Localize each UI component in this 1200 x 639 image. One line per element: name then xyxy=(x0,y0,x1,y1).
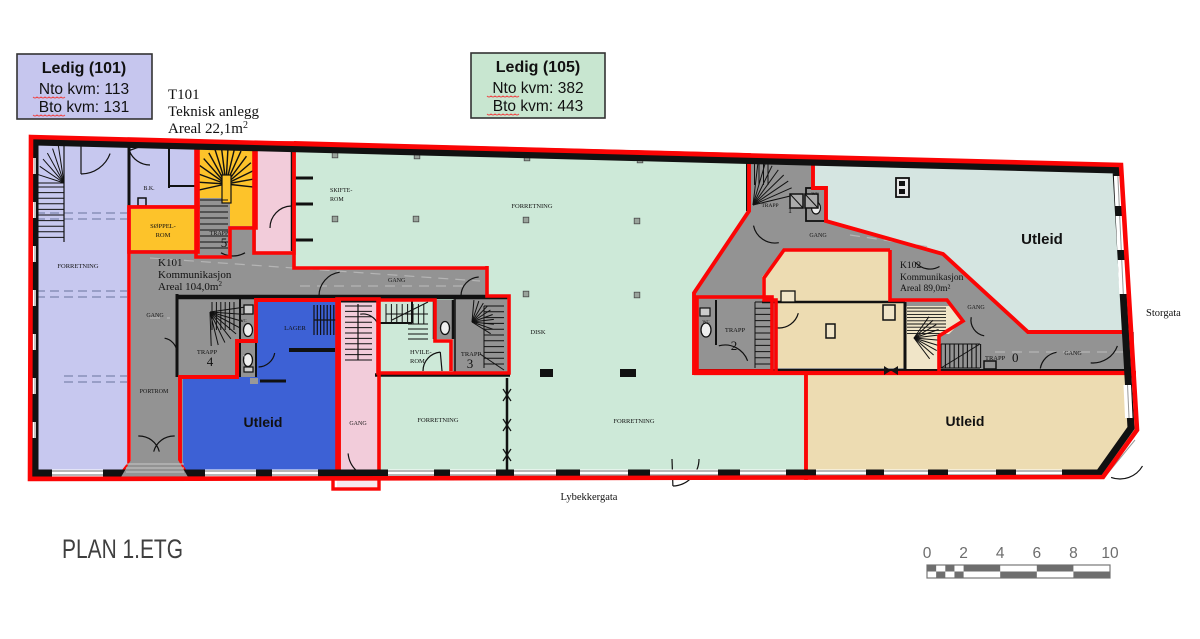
svg-text:1: 1 xyxy=(788,206,792,215)
svg-text:Ledig (101): Ledig (101) xyxy=(42,60,126,77)
svg-text:GANG: GANG xyxy=(967,305,985,311)
svg-text:Utleid: Utleid xyxy=(1021,231,1063,248)
svg-text:FORRETNING: FORRETNING xyxy=(57,263,98,270)
svg-text:PLAN 1.ETG: PLAN 1.ETG xyxy=(62,534,183,564)
svg-text:0: 0 xyxy=(923,545,932,562)
svg-text:ROM: ROM xyxy=(330,197,344,203)
svg-text:Utleid: Utleid xyxy=(244,414,283,430)
svg-text:5: 5 xyxy=(221,235,228,250)
svg-text:GANG: GANG xyxy=(146,313,164,319)
svg-text:FORRETNING: FORRETNING xyxy=(613,418,654,425)
svg-text:2: 2 xyxy=(959,545,968,562)
svg-text:Bto kvm: 131: Bto kvm: 131 xyxy=(39,99,129,116)
svg-text:Nto kvm: 113: Nto kvm: 113 xyxy=(39,81,129,98)
svg-text:SKIFTE-: SKIFTE- xyxy=(330,188,352,194)
svg-text:8: 8 xyxy=(1069,545,1078,562)
svg-text:Utleid: Utleid xyxy=(946,413,985,429)
svg-text:FORRETNING: FORRETNING xyxy=(417,417,458,424)
svg-text:Teknisk anlegg: Teknisk anlegg xyxy=(168,104,260,120)
svg-text:GANG: GANG xyxy=(1064,351,1082,357)
svg-text:Bto kvm: 443: Bto kvm: 443 xyxy=(493,98,583,115)
svg-text:HVILE-: HVILE- xyxy=(410,349,432,356)
svg-text:WC: WC xyxy=(239,318,246,323)
svg-text:K102: K102 xyxy=(900,261,921,271)
svg-text:Kommunikasjon: Kommunikasjon xyxy=(900,273,964,283)
svg-text:0: 0 xyxy=(1012,350,1019,365)
svg-text:Storgata: Storgata xyxy=(1146,308,1181,319)
svg-text:6: 6 xyxy=(1032,545,1041,562)
svg-text:10: 10 xyxy=(1101,545,1119,562)
svg-text:4: 4 xyxy=(996,545,1005,562)
svg-text:Ledig (105): Ledig (105) xyxy=(496,59,580,76)
svg-text:FORRETNING: FORRETNING xyxy=(511,203,552,210)
svg-text:SØPPEL-: SØPPEL- xyxy=(150,223,176,230)
svg-text:Areal 22,1m2: Areal 22,1m2 xyxy=(168,120,248,137)
svg-text:TRAPP: TRAPP xyxy=(725,327,746,334)
svg-text:Areal 104,0m2: Areal 104,0m2 xyxy=(158,280,222,293)
svg-text:3: 3 xyxy=(467,356,474,371)
svg-text:PORTROM: PORTROM xyxy=(140,389,169,395)
svg-text:DISK: DISK xyxy=(530,329,545,336)
svg-text:K101: K101 xyxy=(158,257,182,269)
svg-text:ROM: ROM xyxy=(156,232,171,239)
svg-text:GANG: GANG xyxy=(388,278,406,284)
svg-text:B.K.: B.K. xyxy=(143,186,155,192)
svg-text:TRAPP: TRAPP xyxy=(761,203,778,209)
svg-text:WC: WC xyxy=(243,354,250,359)
svg-text:Lybekkergata: Lybekkergata xyxy=(561,492,618,503)
svg-text:WC: WC xyxy=(702,319,709,324)
svg-text:4: 4 xyxy=(207,354,214,369)
svg-text:Nto kvm: 382: Nto kvm: 382 xyxy=(492,80,583,97)
svg-text:TRAPP: TRAPP xyxy=(985,355,1006,362)
svg-text:GANG: GANG xyxy=(809,233,827,239)
svg-text:WC: WC xyxy=(811,191,818,196)
svg-text:GANG: GANG xyxy=(349,421,367,427)
svg-text:ROM: ROM xyxy=(410,358,425,365)
svg-text:2: 2 xyxy=(731,338,738,353)
svg-text:T101: T101 xyxy=(168,87,200,103)
svg-text:LAGER: LAGER xyxy=(284,325,306,332)
svg-text:Areal 89,0m²: Areal 89,0m² xyxy=(900,284,950,294)
